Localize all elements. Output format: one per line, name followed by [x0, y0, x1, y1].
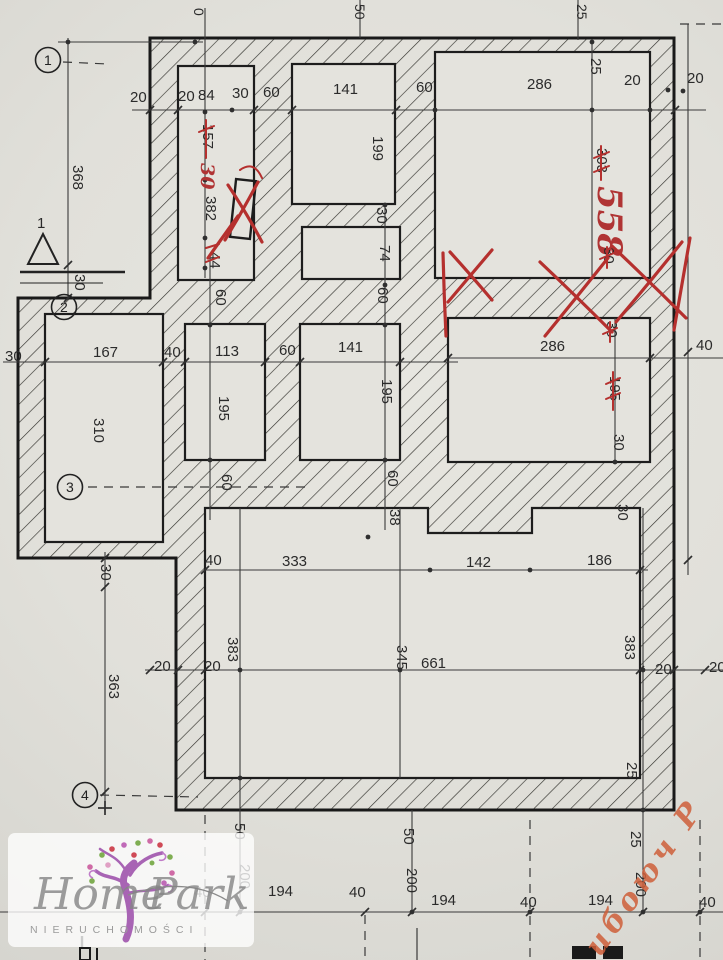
- dim-label: 60: [374, 287, 391, 304]
- logo-watermark: Home Park NIERUCHOMOŚCI: [8, 833, 254, 947]
- dim-label: 383: [621, 635, 638, 660]
- dim-label: 74: [376, 245, 393, 262]
- dim-label: 345: [393, 645, 410, 670]
- dim-label: 38: [386, 509, 403, 526]
- room-big: [205, 508, 640, 778]
- dim-label: 25: [627, 831, 644, 848]
- dim-label: 286: [540, 338, 565, 355]
- dim-label: 195: [378, 379, 395, 404]
- logo-text-park: Park: [147, 869, 250, 920]
- dim-label: 25: [623, 762, 640, 779]
- dim-label: 363: [105, 674, 122, 699]
- dim-label: 142: [466, 554, 491, 571]
- dim-label: 30: [614, 504, 631, 521]
- dim-label: 40: [205, 552, 222, 569]
- logo-text-sub: NIERUCHOMOŚCI: [30, 923, 198, 936]
- dim-label: 84: [198, 87, 215, 104]
- floor-plan-photo: 1 2 3 4 1 0 50 25 20 20 84 30 60 141 60 …: [0, 0, 723, 960]
- dim-label: 310: [90, 418, 107, 443]
- dim-label: 200: [403, 868, 420, 893]
- level-marker-label: 1: [37, 215, 45, 232]
- dim-label: 30: [373, 207, 390, 224]
- rooms: [45, 52, 650, 778]
- dim-label: 40: [164, 344, 181, 361]
- dim-label: 40: [696, 337, 713, 354]
- dim-label: 20: [154, 658, 171, 675]
- dim-label: 368: [69, 165, 86, 190]
- dim-label: 20: [709, 659, 723, 676]
- dim-label: 141: [338, 339, 363, 356]
- dim-label: 60: [218, 474, 235, 491]
- dim-label: 382: [202, 196, 219, 221]
- dim-label: 30: [232, 85, 249, 102]
- axis-label-3: 3: [66, 479, 74, 495]
- axis-label-1: 1: [44, 52, 52, 68]
- dim-label: 60: [279, 342, 296, 359]
- dim-label: 20: [687, 70, 704, 87]
- dim-label: 20: [204, 658, 221, 675]
- dim-label: 30: [71, 274, 88, 291]
- red-correction: 30: [196, 163, 218, 189]
- dim-label: 113: [215, 343, 239, 360]
- dim-label: 30: [5, 348, 22, 365]
- dim-label: 167: [93, 344, 118, 361]
- dim-label: 30: [97, 564, 114, 581]
- dim-label: 141: [333, 81, 358, 98]
- dim-label: 20: [655, 661, 672, 678]
- logo-text-home: Home: [33, 869, 167, 920]
- dim-label: 383: [224, 637, 241, 662]
- dim-label: 333: [282, 553, 307, 570]
- dim-label: 30: [610, 434, 627, 451]
- dim-label: 60: [263, 84, 280, 101]
- dim-label: 194: [431, 892, 456, 909]
- dim-label: 40: [699, 894, 716, 911]
- dim-label: 20: [624, 72, 641, 89]
- axis-label-2: 2: [60, 299, 68, 315]
- dim-label: 50: [352, 4, 368, 20]
- dim-label: 25: [574, 4, 590, 20]
- dim-label: 195: [215, 396, 232, 421]
- dim-label: 194: [268, 883, 293, 900]
- dim-label: 661: [421, 655, 446, 672]
- axis-label-4: 4: [81, 787, 89, 803]
- dim-label: 60: [416, 79, 433, 96]
- dim-label: 60: [384, 470, 401, 487]
- level-marker: 1: [20, 215, 125, 283]
- dim-label: 50: [400, 828, 417, 845]
- dim-label: 40: [349, 884, 366, 901]
- dim-label: 20: [178, 88, 195, 105]
- dim-label: 25: [587, 58, 604, 75]
- dim-label: 286: [527, 76, 552, 93]
- dim-label: 186: [587, 552, 612, 569]
- dim-label: 20: [130, 89, 147, 106]
- dim-label: 0: [191, 8, 207, 16]
- stamp-text: ибоюч Р: [578, 793, 712, 960]
- dim-label: 199: [369, 136, 386, 161]
- dim-label: 60: [212, 289, 229, 306]
- dim-label: 40: [520, 894, 537, 911]
